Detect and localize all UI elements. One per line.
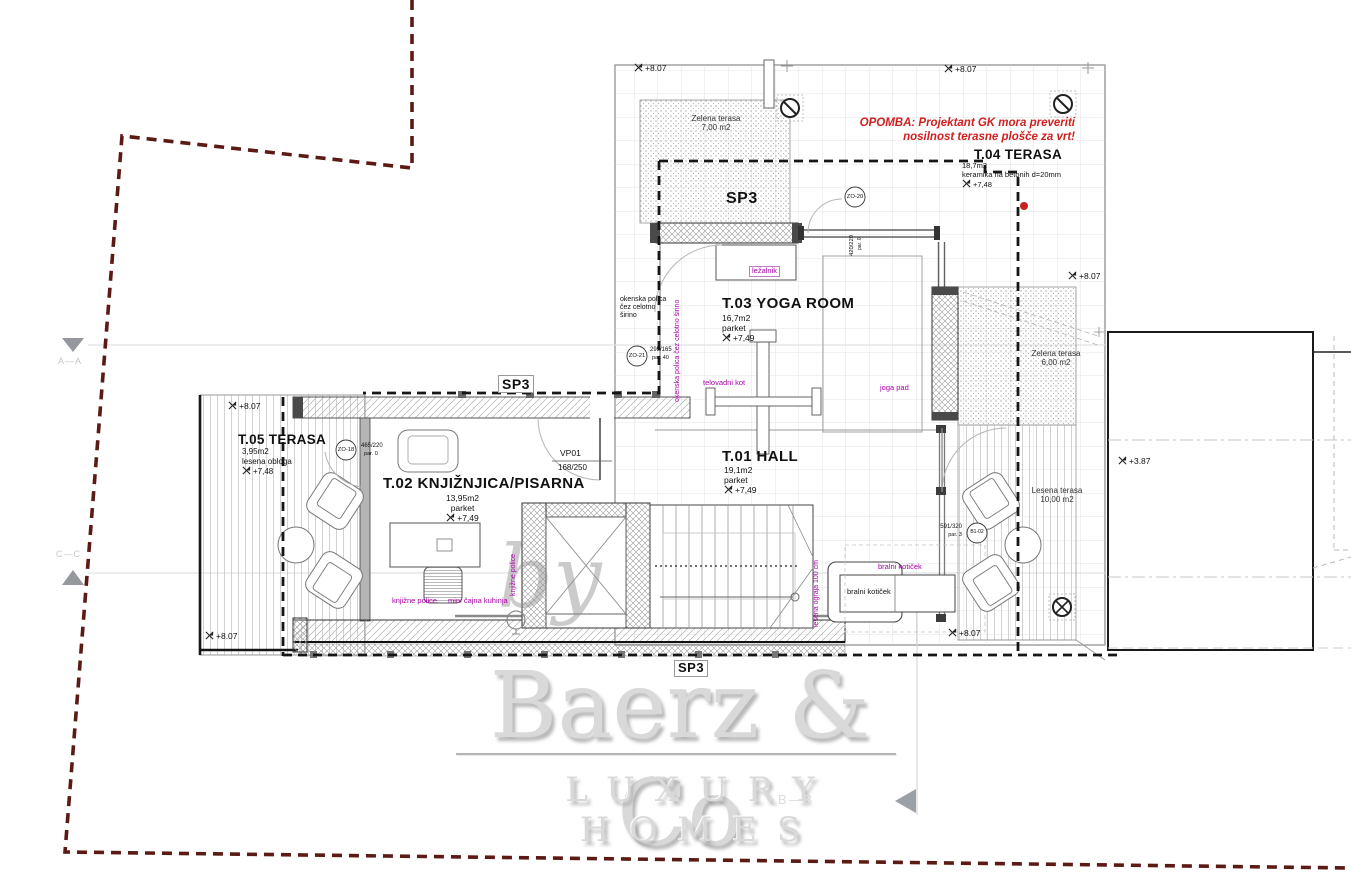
window-par-zo20: par. 0	[858, 237, 864, 250]
green-top-area: 7,00 m2	[666, 123, 766, 132]
elevation-marker: +8.07	[205, 631, 238, 642]
window-tag-zo20: ZO-20	[843, 194, 867, 201]
room-stats-t04: 18,7m2 keramika na betonih d=20mm +7,48	[962, 161, 1061, 189]
room-stats-t03: 16,7m2 parket +7,49	[722, 313, 755, 343]
armchair	[398, 430, 458, 472]
label-knjizne-police-vertical: knjižne police	[510, 554, 518, 596]
window-par-zo21: par. 40	[652, 355, 669, 361]
floor-plan-canvas: by Baerz & Co LUXURY HOMES B—B OPOMBA: P…	[0, 0, 1351, 874]
label-knjizne-police: knjižne police	[392, 597, 437, 606]
okenska-note-1: okenska polica	[620, 296, 666, 304]
label-ograja-vertical: lesena ograja 100 cm	[813, 560, 821, 627]
t01-level: +7,49	[724, 485, 757, 495]
t03-level: +7,49	[722, 333, 755, 343]
label-mini-cajna-kuhinja: mini čajna kuhinja	[448, 597, 508, 606]
watermark-tagline: LUXURY HOMES	[430, 770, 960, 850]
door-tag-size: 168/250	[558, 463, 587, 472]
t05-floor: lesena obloga	[242, 457, 292, 467]
section-label-a: A—A	[58, 356, 82, 366]
window-size-zo18: 465/220	[361, 443, 383, 450]
window-size-zo20: 420/220	[849, 235, 856, 256]
okenska-note-2: čez celotno	[620, 304, 655, 312]
label-okenska-polica-vertical: okenska polica čez celotno širino	[674, 300, 682, 402]
green-right-name: Zelena terasa	[1006, 349, 1106, 358]
window-par-b102: par. 3	[934, 532, 962, 538]
t04-floor: keramika na betonih d=20mm	[962, 170, 1061, 179]
wood-terrace-right-label: Lesena terasa 10,00 m2	[1007, 486, 1107, 504]
section-marker-a	[62, 338, 84, 352]
sp3-label-mid: SP3	[498, 375, 534, 393]
elevation-marker: +8.07	[634, 63, 667, 74]
t05-area: 3,95m2	[242, 447, 292, 457]
t05-level: +7,48	[242, 466, 292, 477]
door-tag-code: VP01	[560, 449, 581, 459]
window-tag-zo21: ZO-21	[625, 353, 649, 360]
right-annex	[1108, 332, 1351, 650]
sp3-label-top: SP3	[726, 190, 758, 208]
t03-area: 16,7m2	[722, 313, 755, 323]
room-title-t02: T.02 KNJIŽNJICA/PISARNA	[383, 475, 585, 492]
elevation-marker: +8.07	[944, 64, 977, 75]
architect-note: OPOMBA: Projektant GK mora preveriti nos…	[845, 116, 1075, 144]
elevation-marker: +8.07	[948, 628, 981, 639]
room-stats-t02: 13,95m2 parket +7,49	[425, 493, 500, 523]
room-stats-t05: 3,95m2 lesena obloga +7,48	[242, 447, 292, 477]
section-label-b: B—B	[778, 793, 814, 808]
sp3-label-bottom: SP3	[674, 660, 708, 677]
label-joga-pad: joga pad	[880, 384, 909, 393]
label-telovadni-kot: telovadni kot	[703, 379, 745, 388]
note-line2: nosilnost terasne plošče za vrt!	[845, 130, 1075, 144]
t04-area: 18,7m2	[962, 161, 1061, 170]
t02-level: +7,49	[425, 513, 500, 523]
section-marker-c	[62, 570, 84, 585]
elevation-marker: +8.07	[1068, 271, 1101, 282]
section-label-c: C—C	[56, 549, 81, 559]
window-tag-b102: B1-02	[965, 530, 989, 536]
room-title-t03: T.03 YOGA ROOM	[722, 295, 854, 312]
wood-right-name: Lesena terasa	[1007, 486, 1107, 495]
window-size-zo21: 295/165	[650, 347, 672, 354]
window-par-zo18: par. 0	[364, 451, 378, 457]
room-stats-t01: 19,1m2 parket +7,49	[724, 465, 757, 495]
desk	[390, 523, 480, 603]
round-table	[1005, 527, 1041, 563]
green-right-area: 6,00 m2	[1006, 358, 1106, 367]
t02-area: 13,95m2	[425, 493, 500, 503]
label-bralni-koticek: bralni kotiček	[847, 588, 891, 597]
wood-right-area: 10,00 m2	[1007, 495, 1107, 504]
t01-area: 19,1m2	[724, 465, 757, 475]
elevation-marker: +8.07	[228, 401, 261, 412]
t01-floor: parket	[724, 475, 757, 485]
okenska-note-3: širino	[620, 312, 637, 320]
label-lezalnik: ležalnik	[749, 266, 780, 277]
t04-level: +7,48	[962, 179, 1061, 189]
watermark-rule	[456, 753, 896, 755]
window-size-b102: 591/320	[928, 524, 962, 531]
label-bralni-koticek-purple: bralni kotiček	[878, 563, 922, 572]
room-title-t01: T.01 HALL	[722, 448, 798, 465]
green-terrace-right-label: Zelena terasa 6,00 m2	[1006, 349, 1106, 367]
green-terrace-top-label: Zelena terasa 7,00 m2	[666, 114, 766, 132]
red-dot	[1020, 202, 1028, 210]
t02-floor: parket	[425, 503, 500, 513]
t03-floor: parket	[722, 323, 755, 333]
window-tag-zo18: ZO-18	[334, 447, 358, 454]
note-line1: OPOMBA: Projektant GK mora preveriti	[845, 116, 1075, 130]
green-top-name: Zelena terasa	[666, 114, 766, 123]
room-title-t05: T.05 TERASA	[238, 432, 326, 448]
elevation-marker-annex: +3.87	[1118, 456, 1151, 467]
chimney	[764, 60, 774, 108]
